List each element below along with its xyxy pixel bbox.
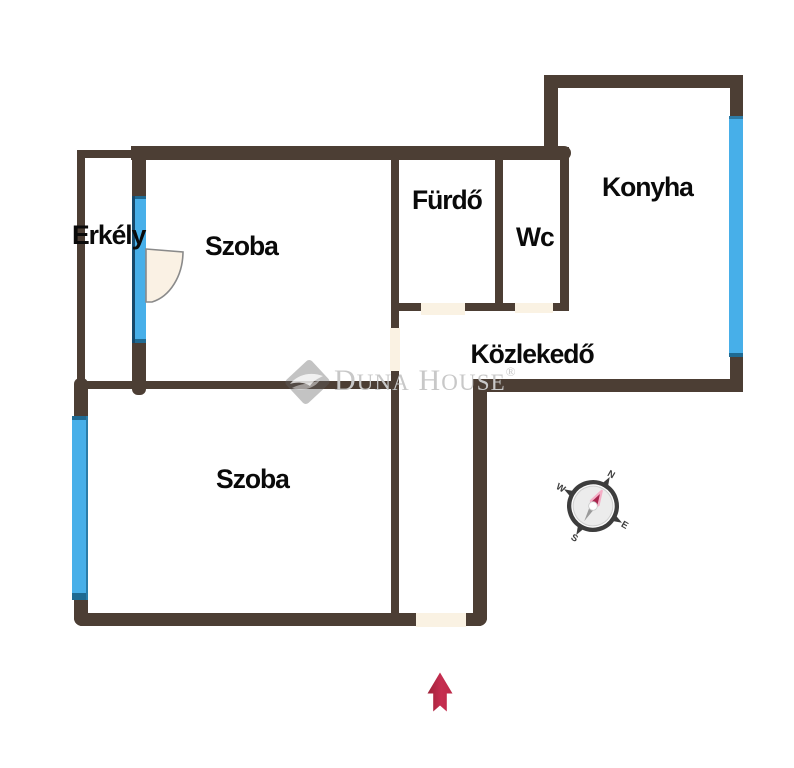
svg-text:E: E [619, 519, 630, 532]
svg-text:W: W [554, 481, 567, 495]
svg-text:S: S [569, 532, 580, 545]
